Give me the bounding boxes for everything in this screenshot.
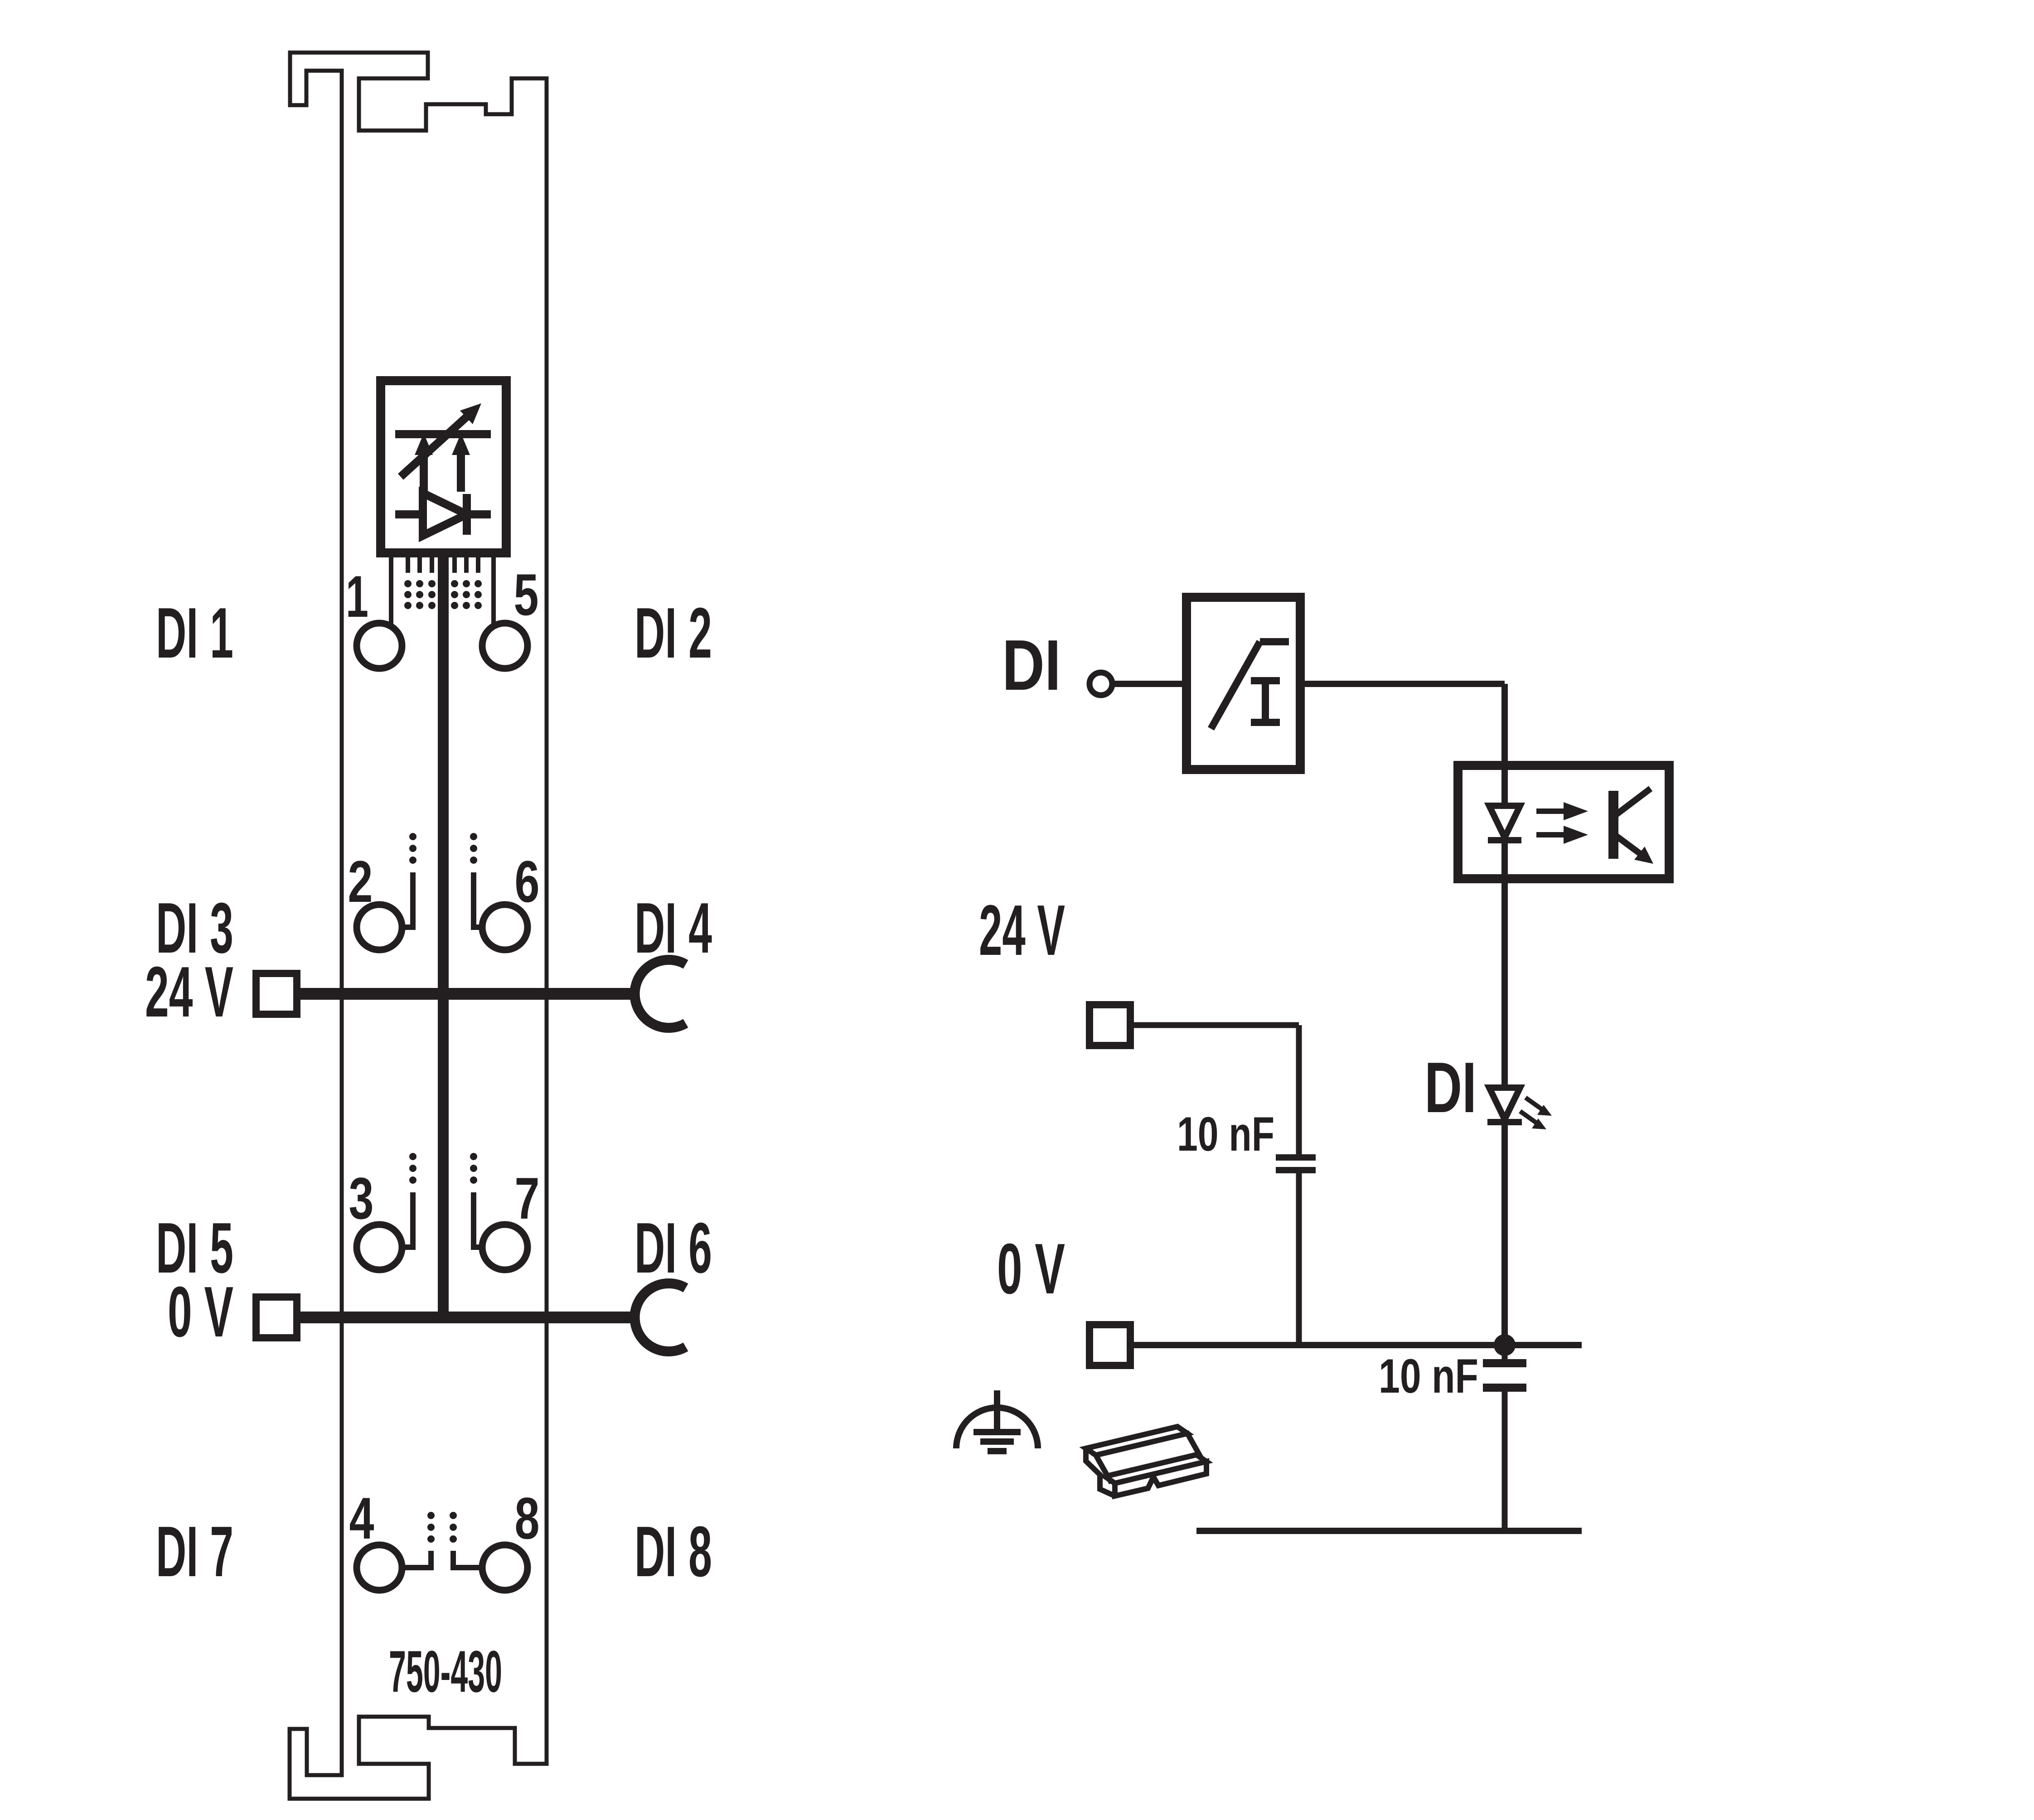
electronics-block xyxy=(381,381,506,553)
clamp-contact-5 xyxy=(482,623,528,668)
label-24v-left: 24 V xyxy=(145,952,233,1032)
capacitor-bottom-label: 10 nF xyxy=(1379,1349,1478,1403)
part-number: 750-430 xyxy=(389,1638,502,1704)
clamp-contact-4 xyxy=(357,1545,402,1590)
contact-number-1: 1 xyxy=(346,563,368,629)
circuit-24v-label: 24 V xyxy=(979,891,1065,970)
24v-terminal-icon xyxy=(256,973,297,1014)
clamp-contact-8 xyxy=(482,1545,528,1590)
label-di6: DI 6 xyxy=(634,1208,712,1288)
contact-number-8: 8 xyxy=(515,1485,540,1551)
0v-terminal-icon xyxy=(256,1297,297,1338)
0v-terminal-icon xyxy=(1090,1325,1130,1365)
label-di4: DI 4 xyxy=(634,888,712,968)
contact-number-6: 6 xyxy=(515,848,540,915)
wago-750-430-connection-diagram: DI 1 DI 2 DI 3 DI 4 24 V DI 5 DI 6 0 V D… xyxy=(0,0,2034,1820)
24v-terminal-icon xyxy=(1090,1005,1130,1046)
clamp-contact-1 xyxy=(357,623,402,668)
contact-number-7: 7 xyxy=(515,1165,540,1231)
label-0v-left: 0 V xyxy=(168,1272,233,1352)
di-input-terminal-icon xyxy=(1090,673,1112,695)
wiring-diagram-page: DI 1 DI 2 DI 3 DI 4 24 V DI 5 DI 6 0 V D… xyxy=(0,0,2034,1820)
capacitor-top-label: 10 nF xyxy=(1177,1107,1274,1161)
circuit-di-input-label: DI xyxy=(1002,625,1061,705)
clamp-contact-7 xyxy=(482,1225,528,1270)
circuit-led-label: DI xyxy=(1424,1048,1477,1128)
label-di1: DI 1 xyxy=(156,593,233,673)
label-di7: DI 7 xyxy=(156,1512,233,1592)
contact-number-4: 4 xyxy=(349,1485,374,1551)
contact-number-3: 3 xyxy=(349,1165,374,1231)
clamp-contact-3 xyxy=(357,1225,402,1270)
contact-number-5: 5 xyxy=(514,561,539,628)
threshold-box xyxy=(1186,597,1300,770)
label-di2: DI 2 xyxy=(634,593,712,673)
circuit-0v-label: 0 V xyxy=(997,1229,1065,1309)
contact-number-2: 2 xyxy=(348,848,373,915)
optocoupler-box xyxy=(1458,765,1669,879)
label-di8: DI 8 xyxy=(634,1512,712,1592)
